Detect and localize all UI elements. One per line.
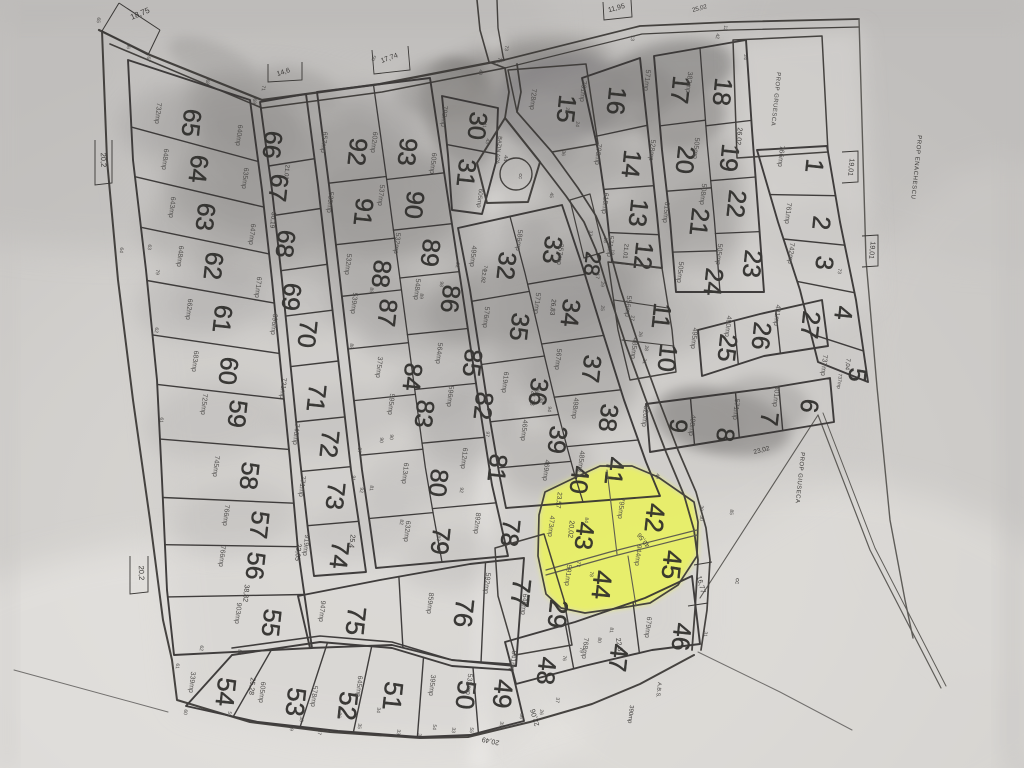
svg-text:95: 95 <box>538 397 545 403</box>
svg-text:37: 37 <box>587 230 594 236</box>
svg-text:40: 40 <box>477 69 484 75</box>
svg-text:81: 81 <box>608 627 615 633</box>
svg-text:77: 77 <box>575 561 582 567</box>
svg-text:68: 68 <box>270 229 301 260</box>
svg-text:88: 88 <box>366 259 397 290</box>
svg-text:26: 26 <box>637 331 644 337</box>
svg-text:39: 39 <box>542 425 573 456</box>
svg-text:20,2: 20,2 <box>99 152 109 167</box>
svg-text:41: 41 <box>599 456 630 487</box>
svg-text:38: 38 <box>593 403 624 434</box>
svg-text:17: 17 <box>594 273 601 279</box>
svg-text:92: 92 <box>342 137 373 168</box>
svg-text:73: 73 <box>836 268 843 274</box>
svg-text:24: 24 <box>742 54 749 60</box>
svg-text:67: 67 <box>145 56 152 62</box>
svg-text:79: 79 <box>578 647 585 653</box>
svg-text:5b: 5b <box>370 55 377 61</box>
svg-text:42: 42 <box>639 502 672 534</box>
svg-text:61: 61 <box>207 304 238 335</box>
svg-text:39: 39 <box>288 725 295 731</box>
svg-text:66: 66 <box>125 43 132 49</box>
svg-text:22: 22 <box>721 189 752 220</box>
svg-text:33: 33 <box>395 729 402 735</box>
svg-text:36: 36 <box>560 150 567 156</box>
svg-text:62: 62 <box>198 645 205 651</box>
svg-text:37: 37 <box>576 354 607 385</box>
svg-text:8: 8 <box>710 426 739 443</box>
svg-text:89: 89 <box>418 293 425 299</box>
svg-text:64: 64 <box>118 247 125 253</box>
svg-text:20,2: 20,2 <box>137 565 147 580</box>
svg-text:69: 69 <box>251 98 258 104</box>
svg-text:49: 49 <box>654 473 661 479</box>
svg-text:62: 62 <box>153 327 160 333</box>
svg-text:78: 78 <box>588 571 595 577</box>
svg-text:73: 73 <box>503 45 510 51</box>
svg-text:46: 46 <box>666 622 697 653</box>
svg-text:92: 92 <box>458 487 465 493</box>
svg-text:61: 61 <box>158 417 165 423</box>
svg-text:37: 37 <box>316 729 323 735</box>
svg-text:74: 74 <box>482 265 489 271</box>
svg-text:59: 59 <box>226 711 233 717</box>
svg-text:92: 92 <box>358 487 365 493</box>
svg-text:25,4: 25,4 <box>347 534 355 548</box>
svg-text:28: 28 <box>643 345 650 351</box>
svg-text:13: 13 <box>629 35 636 41</box>
svg-text:54: 54 <box>210 676 243 708</box>
svg-text:90: 90 <box>399 190 430 221</box>
svg-text:26: 26 <box>746 321 777 352</box>
svg-text:19: 19 <box>609 249 616 255</box>
svg-text:44: 44 <box>502 155 509 162</box>
svg-text:18: 18 <box>602 237 609 243</box>
svg-text:29: 29 <box>542 598 575 630</box>
svg-text:93: 93 <box>392 137 423 168</box>
svg-text:50: 50 <box>698 515 705 521</box>
svg-text:80: 80 <box>596 637 603 643</box>
svg-text:79: 79 <box>154 269 161 275</box>
svg-text:27: 27 <box>629 315 636 321</box>
svg-text:65: 65 <box>176 108 207 139</box>
svg-text:75: 75 <box>496 57 503 63</box>
svg-text:21: 21 <box>641 358 648 364</box>
svg-text:98: 98 <box>438 281 445 287</box>
svg-text:62: 62 <box>198 251 229 282</box>
svg-text:32: 32 <box>416 733 423 739</box>
svg-text:89: 89 <box>368 287 375 293</box>
svg-text:13: 13 <box>623 198 654 229</box>
svg-text:84: 84 <box>583 517 590 523</box>
svg-text:87: 87 <box>372 298 403 329</box>
svg-text:60: 60 <box>213 356 244 387</box>
svg-text:82: 82 <box>468 391 499 422</box>
svg-text:63: 63 <box>190 202 221 233</box>
svg-text:56: 56 <box>240 551 271 582</box>
svg-text:83: 83 <box>409 399 440 430</box>
svg-text:90: 90 <box>378 437 385 443</box>
svg-text:90: 90 <box>388 434 395 440</box>
svg-text:72: 72 <box>314 429 345 460</box>
svg-text:30: 30 <box>698 505 705 511</box>
svg-text:2: 2 <box>806 214 835 231</box>
svg-text:64: 64 <box>183 154 214 185</box>
svg-text:45: 45 <box>548 192 555 198</box>
svg-text:61: 61 <box>174 663 181 669</box>
svg-text:75: 75 <box>340 605 373 637</box>
svg-text:cc: cc <box>733 578 740 585</box>
svg-text:55: 55 <box>468 727 475 733</box>
svg-text:24: 24 <box>698 267 729 298</box>
svg-text:48: 48 <box>531 656 562 687</box>
svg-text:24: 24 <box>574 121 581 127</box>
svg-text:25: 25 <box>599 305 606 311</box>
svg-text:32: 32 <box>491 251 522 282</box>
svg-text:97: 97 <box>484 431 491 437</box>
svg-text:27: 27 <box>795 310 826 341</box>
svg-text:59: 59 <box>222 399 253 430</box>
svg-text:12: 12 <box>722 25 729 31</box>
svg-text:82: 82 <box>398 519 405 525</box>
svg-text:73: 73 <box>320 481 351 512</box>
svg-text:81: 81 <box>368 485 375 491</box>
svg-text:37: 37 <box>554 697 561 703</box>
svg-text:60: 60 <box>182 709 189 715</box>
svg-text:16: 16 <box>601 86 632 117</box>
svg-text:80: 80 <box>423 468 454 499</box>
svg-text:57: 57 <box>244 510 275 541</box>
svg-text:91: 91 <box>348 197 379 228</box>
svg-text:45: 45 <box>656 549 689 581</box>
svg-text:35: 35 <box>504 312 535 343</box>
svg-text:35: 35 <box>498 721 505 727</box>
svg-text:29: 29 <box>599 281 606 287</box>
svg-text:cc: cc <box>517 173 524 179</box>
svg-text:58: 58 <box>234 461 265 492</box>
svg-text:53: 53 <box>280 686 313 718</box>
svg-text:86: 86 <box>435 284 466 315</box>
svg-text:18: 18 <box>707 77 738 108</box>
svg-text:71: 71 <box>301 383 332 414</box>
svg-text:22: 22 <box>454 262 461 268</box>
svg-text:31: 31 <box>702 631 709 637</box>
svg-text:94: 94 <box>546 406 553 412</box>
svg-text:23: 23 <box>737 249 768 280</box>
svg-text:43: 43 <box>484 138 491 144</box>
svg-text:21: 21 <box>684 207 715 238</box>
svg-text:55: 55 <box>256 608 287 639</box>
svg-text:41: 41 <box>481 122 488 128</box>
svg-text:42: 42 <box>714 33 721 39</box>
svg-text:87: 87 <box>356 447 363 453</box>
svg-text:65: 65 <box>95 17 102 23</box>
svg-text:38: 38 <box>298 716 305 722</box>
svg-text:49: 49 <box>487 678 520 710</box>
svg-text:83: 83 <box>435 535 442 541</box>
svg-text:63: 63 <box>146 244 153 250</box>
svg-text:35: 35 <box>356 723 363 729</box>
svg-text:66: 66 <box>257 130 288 161</box>
svg-text:71: 71 <box>260 85 267 91</box>
svg-text:86: 86 <box>236 649 243 655</box>
svg-text:33: 33 <box>450 727 457 733</box>
svg-text:36: 36 <box>336 712 343 718</box>
svg-text:23: 23 <box>564 107 571 113</box>
svg-text:69: 69 <box>276 282 307 313</box>
svg-text:28: 28 <box>579 250 606 277</box>
svg-text:6: 6 <box>794 397 823 414</box>
svg-text:76: 76 <box>448 597 481 629</box>
svg-text:96: 96 <box>534 387 541 393</box>
svg-text:91: 91 <box>350 475 357 481</box>
svg-text:84: 84 <box>397 362 428 393</box>
svg-text:14: 14 <box>616 149 647 180</box>
svg-text:10: 10 <box>652 343 683 374</box>
svg-text:7: 7 <box>754 410 783 427</box>
svg-text:11: 11 <box>646 301 677 330</box>
svg-text:3: 3 <box>809 254 838 271</box>
svg-text:89: 89 <box>415 238 446 269</box>
svg-text:1: 1 <box>799 157 828 174</box>
svg-text:88: 88 <box>348 343 355 349</box>
svg-text:34: 34 <box>555 298 586 329</box>
svg-text:68: 68 <box>204 79 211 85</box>
svg-text:76: 76 <box>561 655 568 661</box>
svg-text:36: 36 <box>518 713 525 719</box>
svg-text:70: 70 <box>292 319 323 350</box>
svg-text:26: 26 <box>538 709 545 715</box>
svg-text:54: 54 <box>431 724 438 730</box>
svg-text:34: 34 <box>375 707 382 713</box>
svg-text:85: 85 <box>728 509 735 515</box>
svg-text:7,04: 7,04 <box>843 358 850 371</box>
